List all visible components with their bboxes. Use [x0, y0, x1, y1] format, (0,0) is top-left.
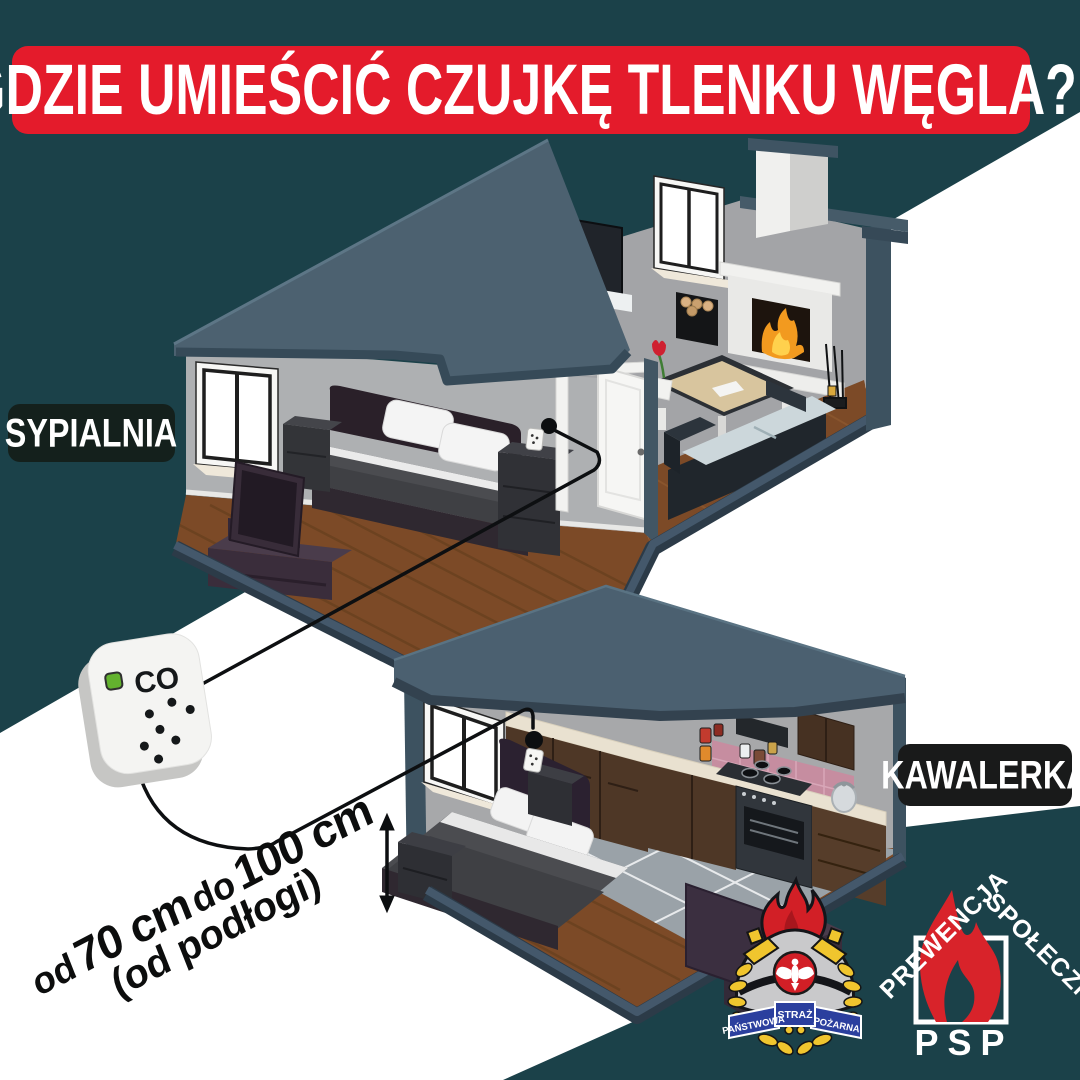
- page-title: GDZIE UMIEŚCIĆ CZUJKĘ TLENKU WĘGLA?: [0, 49, 1077, 131]
- badge-ribbon-text-center: STRAŻ: [778, 1008, 814, 1021]
- wall-detector-bedroom: [526, 428, 544, 451]
- door-handle: [638, 449, 645, 456]
- title-banner: GDZIE UMIEŚCIĆ CZUJKĘ TLENKU WĘGLA?: [12, 46, 1030, 134]
- label-studio-text: KAWALERKA: [881, 752, 1080, 798]
- right-wall-edge: [866, 222, 891, 431]
- infographic-poster: CO: [0, 0, 1080, 1080]
- label-bedroom-text: SYPIALNIA: [5, 410, 178, 456]
- detector-led: [105, 672, 123, 690]
- wall-detector-studio: [523, 748, 544, 773]
- detector-co-label: CO: [132, 661, 182, 701]
- firewood-rack: [676, 292, 718, 346]
- callout-dot-studio: [525, 731, 543, 749]
- chimney: [748, 138, 838, 238]
- label-studio: KAWALERKA: [898, 744, 1072, 806]
- prewencja-text-psp: PSP: [914, 1022, 1013, 1063]
- kettle: [832, 782, 856, 813]
- co-detector-device: CO: [72, 630, 217, 792]
- label-bedroom: SYPIALNIA: [8, 404, 175, 462]
- dividing-wall-edge: [644, 358, 658, 546]
